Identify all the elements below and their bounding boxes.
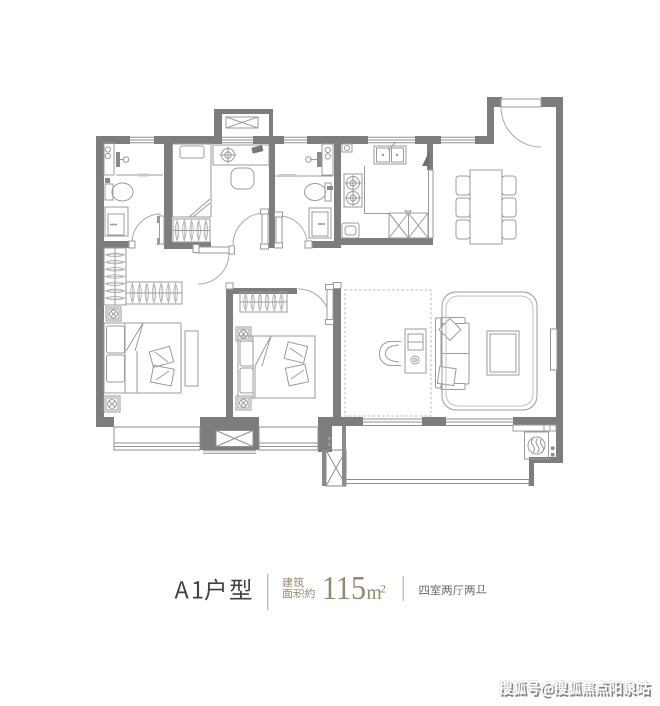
svg-text:2: 2 — [380, 582, 386, 596]
svg-text:115: 115 — [322, 570, 366, 607]
